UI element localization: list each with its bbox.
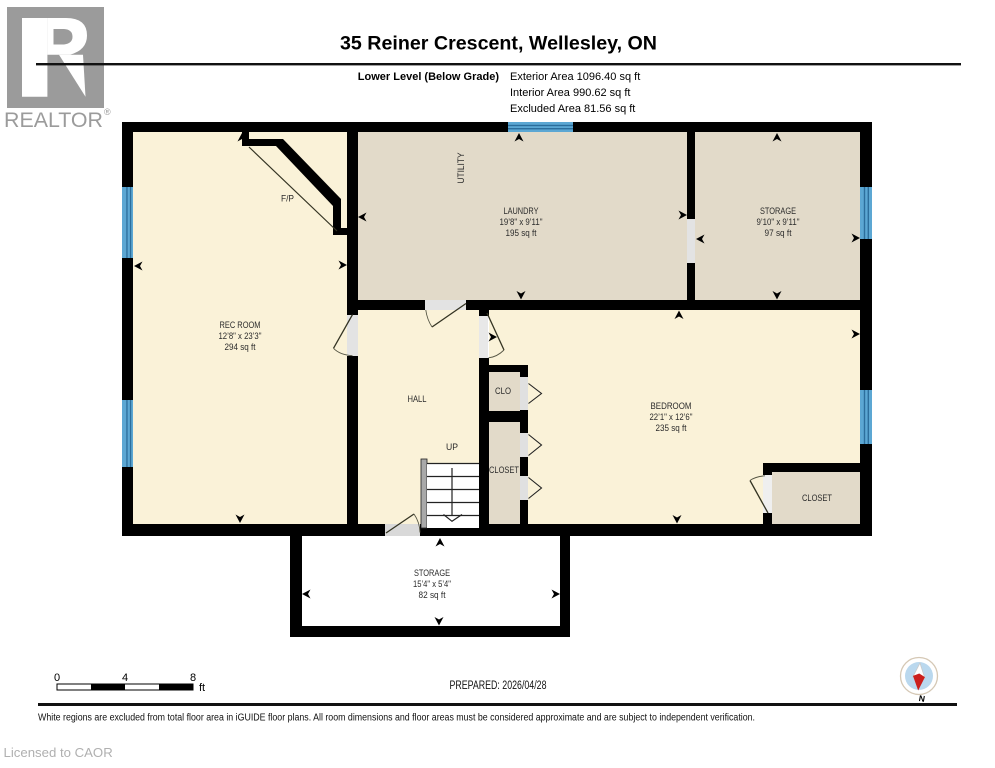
svg-text:9’10" x 9’11": 9’10" x 9’11" xyxy=(757,217,800,228)
svg-text:195 sq ft: 195 sq ft xyxy=(506,228,537,239)
svg-text:N: N xyxy=(918,693,926,704)
svg-text:STORAGE: STORAGE xyxy=(760,206,796,217)
svg-text:35 Reiner Crescent, Wellesley,: 35 Reiner Crescent, Wellesley, ON xyxy=(340,34,657,55)
svg-text:UP: UP xyxy=(446,442,458,453)
svg-text:4: 4 xyxy=(122,672,128,684)
svg-text:Interior Area 990.62 sq ft: Interior Area 990.62 sq ft xyxy=(510,87,630,99)
svg-text:97 sq ft: 97 sq ft xyxy=(765,228,792,239)
svg-text:HALL: HALL xyxy=(408,394,427,405)
svg-text:CLOSET: CLOSET xyxy=(489,465,519,476)
svg-text:Lower Level (Below Grade): Lower Level (Below Grade) xyxy=(358,71,500,83)
svg-text:22’1" x 12’6": 22’1" x 12’6" xyxy=(650,412,693,423)
svg-text:CLOSET: CLOSET xyxy=(802,493,832,504)
svg-text:Licensed to CAOR: Licensed to CAOR xyxy=(4,745,113,760)
svg-text:19’8" x 9’11": 19’8" x 9’11" xyxy=(500,217,543,228)
svg-text:PREPARED: 2026/04/28: PREPARED: 2026/04/28 xyxy=(450,680,547,692)
svg-text:0: 0 xyxy=(54,672,60,684)
svg-text:White regions are excluded fro: White regions are excluded from total fl… xyxy=(38,713,755,724)
svg-text:294 sq ft: 294 sq ft xyxy=(225,342,256,353)
svg-text:LAUNDRY: LAUNDRY xyxy=(504,206,540,217)
svg-text:®: ® xyxy=(104,107,111,117)
svg-text:82 sq ft: 82 sq ft xyxy=(419,590,446,601)
svg-text:CLO: CLO xyxy=(495,386,511,397)
svg-text:BEDROOM: BEDROOM xyxy=(651,401,692,412)
svg-text:Exterior Area 1096.40 sq ft: Exterior Area 1096.40 sq ft xyxy=(510,71,640,83)
svg-text:15’4" x 5’4": 15’4" x 5’4" xyxy=(413,579,451,590)
svg-text:12’8" x 23’3": 12’8" x 23’3" xyxy=(219,331,262,342)
svg-text:Excluded Area 81.56 sq ft: Excluded Area 81.56 sq ft xyxy=(510,103,635,115)
svg-text:F/P: F/P xyxy=(281,194,294,205)
svg-text:REC ROOM: REC ROOM xyxy=(220,320,261,331)
svg-text:235 sq ft: 235 sq ft xyxy=(656,423,687,434)
svg-text:STORAGE: STORAGE xyxy=(414,568,450,579)
svg-text:8: 8 xyxy=(190,672,196,684)
svg-text:UTILITY: UTILITY xyxy=(456,152,467,184)
svg-text:ft: ft xyxy=(199,682,205,694)
svg-text:REALTOR: REALTOR xyxy=(4,109,103,132)
